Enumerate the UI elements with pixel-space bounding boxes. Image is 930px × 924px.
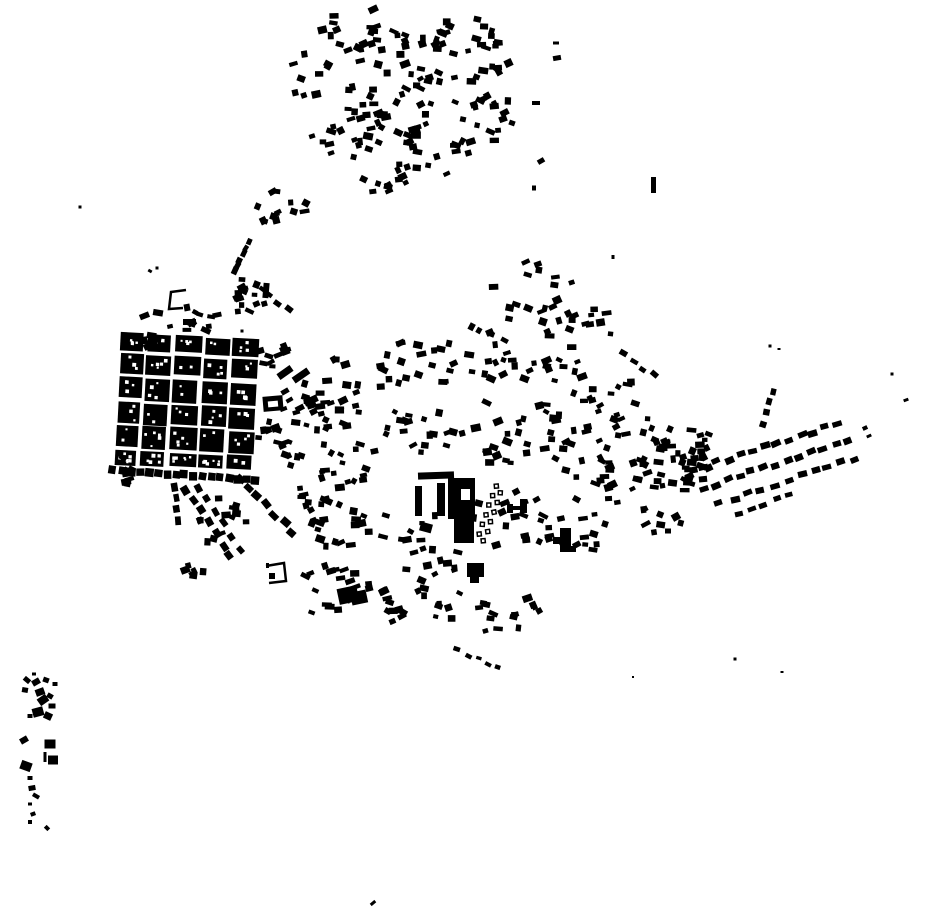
building [22, 687, 29, 693]
courtyard-hole [220, 366, 223, 369]
building [475, 605, 483, 610]
checker-cell-hole [489, 520, 492, 523]
building [580, 399, 588, 404]
courtyard-hole [130, 339, 133, 342]
building [640, 506, 646, 514]
building [553, 42, 559, 45]
building [334, 606, 342, 613]
courtyard-hole [158, 461, 161, 464]
checker-cell-hole [485, 514, 488, 517]
courtyard-hole [125, 389, 129, 393]
building [189, 472, 197, 481]
city-block [172, 379, 198, 403]
building [429, 546, 436, 554]
building [386, 376, 393, 383]
courtyard-hole [128, 455, 131, 458]
building [687, 459, 697, 467]
building [329, 13, 338, 19]
building [28, 803, 32, 806]
courtyard-hole [126, 461, 128, 463]
city-block [169, 453, 196, 467]
courtyard-hole [189, 456, 191, 458]
building [702, 438, 708, 442]
building [654, 478, 662, 484]
courtyard-hole [121, 439, 124, 442]
landmark-building [467, 563, 484, 577]
courtyard-hole [135, 342, 138, 345]
building [53, 682, 58, 686]
courtyard-hole [212, 417, 214, 419]
courtyard-hole [217, 463, 220, 466]
courtyard-hole [128, 459, 132, 463]
building [221, 511, 231, 518]
building [573, 474, 579, 480]
courtyard-hole [151, 364, 153, 366]
building [28, 776, 33, 780]
courtyard-hole [125, 380, 129, 384]
building [45, 740, 56, 749]
city-block [205, 338, 230, 356]
building [593, 541, 599, 547]
building [215, 473, 223, 482]
courtyard-hole [244, 438, 247, 441]
building [127, 468, 136, 477]
building [503, 522, 510, 529]
building [769, 345, 772, 348]
building [489, 284, 499, 290]
building [136, 468, 144, 475]
checker-cell-hole [482, 539, 485, 542]
checker-cell-hole [488, 504, 491, 507]
building [204, 538, 211, 546]
landmark-building [553, 537, 561, 544]
building [350, 570, 359, 577]
building [48, 756, 58, 765]
building [495, 128, 501, 133]
building [175, 516, 181, 525]
building [556, 411, 562, 419]
checker-cell-hole [481, 523, 484, 526]
building [365, 528, 373, 535]
building [351, 108, 358, 115]
building [345, 87, 353, 94]
courtyard-hole [202, 461, 205, 464]
checker-cell-hole [491, 494, 494, 497]
building [28, 714, 33, 718]
building [653, 459, 663, 466]
building [412, 164, 421, 171]
courtyard-hole [209, 391, 213, 395]
building [235, 290, 243, 296]
building [443, 18, 451, 25]
building [353, 446, 359, 452]
building [432, 512, 438, 519]
building [608, 391, 615, 396]
courtyard-hole [149, 460, 153, 464]
landmark-building [183, 319, 196, 325]
courtyard-hole [132, 405, 135, 408]
building [241, 330, 244, 333]
building [235, 308, 241, 314]
building [288, 199, 294, 205]
building [354, 381, 361, 389]
checker-cell-hole [493, 511, 496, 514]
building [467, 78, 477, 85]
checker-cell-hole [495, 485, 498, 488]
courtyard-hole [151, 454, 155, 458]
landmark-building [651, 177, 656, 193]
courtyard-hole [217, 373, 220, 376]
building [545, 525, 552, 531]
building [448, 615, 456, 622]
building [481, 370, 488, 378]
building [335, 483, 346, 491]
building [49, 704, 56, 709]
building [680, 488, 690, 492]
courtyard-hole [246, 349, 249, 352]
landmark-building [437, 483, 445, 516]
courtyard-hole [156, 382, 158, 384]
building [699, 476, 708, 483]
courtyard-hole [245, 341, 248, 344]
courtyard-hole [208, 420, 212, 424]
courtyard-hole [156, 363, 160, 367]
building [632, 676, 634, 678]
building [108, 465, 116, 474]
city-block [118, 401, 141, 423]
building [425, 162, 431, 168]
landmark-building [269, 573, 275, 579]
building [331, 471, 337, 477]
building [612, 255, 615, 259]
city-block [174, 356, 202, 376]
courtyard-hole [180, 393, 183, 396]
building [396, 161, 402, 167]
building [349, 507, 358, 516]
courtyard-hole [181, 437, 184, 440]
courtyard-hole [131, 342, 134, 345]
courtyard-hole [234, 439, 237, 442]
courtyard-hole [247, 434, 250, 437]
building [314, 426, 320, 433]
building [315, 71, 323, 77]
courtyard-hole [158, 433, 161, 436]
building-footprint-map [0, 0, 930, 924]
building [608, 331, 614, 336]
building [179, 470, 187, 479]
building [596, 318, 606, 327]
building [421, 592, 427, 599]
building [359, 477, 367, 484]
building [605, 496, 612, 501]
building [505, 431, 511, 437]
courtyard-hole [147, 413, 150, 416]
courtyard-hole [148, 394, 151, 397]
building [763, 409, 771, 416]
building [588, 313, 594, 318]
building [559, 445, 568, 452]
building [668, 479, 678, 487]
building [402, 566, 410, 572]
building [369, 189, 377, 195]
building [316, 391, 325, 396]
courtyard-hole [125, 428, 127, 430]
building [377, 383, 385, 390]
courtyard-hole [241, 390, 245, 394]
building [698, 454, 705, 462]
building [183, 328, 192, 332]
building [344, 107, 351, 111]
courtyard-hole [181, 340, 183, 342]
city-block [143, 404, 168, 427]
courtyard-hole [132, 384, 135, 387]
building [656, 521, 666, 529]
building [225, 473, 234, 483]
building [645, 416, 651, 421]
building [567, 344, 576, 350]
landmark-building [454, 519, 474, 543]
building [154, 469, 163, 477]
city-block [228, 408, 255, 430]
city-block [119, 376, 143, 398]
building [505, 97, 511, 105]
courtyard-hole [135, 367, 138, 370]
building [734, 658, 737, 661]
building [474, 122, 480, 128]
building [591, 512, 597, 517]
building [398, 537, 405, 543]
building [545, 333, 555, 338]
building [394, 33, 400, 39]
building [79, 206, 82, 209]
courtyard-hole [150, 445, 152, 447]
map-canvas [0, 0, 930, 924]
city-block [120, 353, 144, 375]
building [511, 362, 518, 370]
building [263, 426, 272, 430]
courtyard-hole [128, 355, 131, 358]
building [559, 364, 567, 369]
courtyard-hole [207, 363, 211, 367]
courtyard-hole [203, 434, 206, 437]
building [384, 69, 391, 76]
building [323, 424, 332, 430]
building [891, 373, 894, 376]
city-block [202, 381, 228, 404]
building [418, 449, 424, 455]
building [322, 377, 332, 384]
building [156, 267, 159, 270]
building [400, 428, 408, 434]
building [435, 409, 443, 418]
building [200, 568, 207, 576]
courtyard-hole [157, 367, 159, 369]
courtyard-hole [218, 460, 220, 462]
building [378, 46, 386, 54]
courtyard-hole [237, 442, 240, 445]
building [44, 752, 47, 762]
checker-cell-hole [499, 492, 502, 495]
courtyard-hole [243, 412, 247, 416]
building [251, 476, 260, 485]
landmark-building [415, 486, 422, 516]
building [485, 459, 494, 466]
building [172, 505, 180, 513]
courtyard-hole [176, 407, 178, 409]
building [589, 386, 597, 392]
courtyard-hole [179, 366, 182, 369]
building [515, 624, 521, 631]
courtyard-hole [179, 411, 182, 414]
building [408, 71, 414, 77]
courtyard-hole [132, 363, 136, 367]
courtyard-hole [244, 396, 246, 398]
courtyard-hole [239, 350, 241, 352]
building [395, 176, 403, 183]
building [778, 348, 781, 350]
building [422, 111, 429, 118]
building [239, 277, 246, 282]
courtyard-hole [180, 385, 182, 387]
courtyard-hole [240, 346, 243, 349]
building [369, 101, 378, 106]
landmark-courtyard [461, 489, 470, 500]
courtyard-hole [157, 454, 160, 457]
building [535, 266, 542, 273]
courtyard-hole [250, 363, 252, 365]
building [269, 364, 275, 368]
courtyard-hole [150, 385, 154, 389]
courtyard-hole [154, 396, 157, 399]
building [429, 430, 438, 438]
building [580, 534, 590, 540]
building [171, 482, 179, 492]
building [480, 23, 488, 29]
building [670, 455, 676, 463]
courtyard-hole [190, 366, 193, 369]
building [328, 32, 334, 39]
courtyard-hole [214, 343, 217, 346]
checker-cell-hole [496, 501, 499, 504]
courtyard-hole [186, 342, 189, 345]
building [548, 436, 555, 442]
building [469, 369, 476, 375]
courtyard-hole [153, 431, 156, 434]
building [492, 341, 498, 348]
city-block [171, 405, 199, 426]
courtyard-hole [172, 456, 176, 460]
building [291, 419, 301, 426]
city-block [140, 451, 164, 467]
landmark-courtyard [268, 401, 278, 408]
building [355, 409, 361, 415]
building [320, 400, 330, 405]
city-block [141, 426, 166, 450]
building [320, 467, 330, 473]
building [651, 529, 657, 535]
city-block [230, 383, 257, 406]
checker-cell-hole [486, 530, 489, 533]
courtyard-hole [241, 461, 245, 465]
building [550, 282, 559, 289]
landmark-building [560, 528, 571, 547]
courtyard-hole [152, 420, 155, 423]
building [396, 51, 404, 58]
building [334, 356, 340, 362]
building [523, 449, 531, 456]
building [465, 48, 471, 54]
courtyard-hole [219, 391, 222, 394]
building [665, 529, 671, 534]
building [138, 336, 148, 345]
building [781, 671, 784, 673]
building [208, 472, 216, 480]
building [420, 35, 426, 42]
building [615, 432, 622, 438]
building [362, 112, 370, 119]
building [252, 293, 258, 297]
building [532, 101, 540, 105]
building [485, 358, 493, 365]
landmark-building [470, 577, 479, 583]
building [301, 50, 308, 58]
courtyard-hole [129, 409, 133, 413]
courtyard-hole [212, 431, 215, 434]
checker-cell-hole [478, 533, 481, 536]
courtyard-hole [186, 443, 188, 445]
landmark-building [512, 506, 521, 510]
city-block [201, 405, 227, 427]
building [32, 673, 36, 676]
building [239, 302, 244, 308]
building [532, 186, 536, 191]
courtyard-hole [164, 359, 168, 363]
courtyard-hole [160, 362, 163, 365]
building [321, 441, 327, 448]
city-block [231, 359, 258, 379]
building [318, 501, 324, 507]
building [297, 485, 303, 491]
building [508, 357, 517, 362]
courtyard-hole [176, 440, 179, 443]
landmark-building [520, 499, 527, 513]
building [118, 466, 127, 475]
building [243, 519, 250, 524]
courtyard-hole [173, 431, 176, 434]
building [416, 538, 425, 543]
building [369, 87, 377, 93]
building [571, 427, 577, 435]
building [697, 448, 705, 454]
courtyard-hole [183, 457, 185, 459]
building [320, 139, 327, 144]
courtyard-hole [212, 460, 214, 462]
landmark-building [183, 304, 190, 312]
courtyard-hole [172, 460, 175, 463]
building [438, 379, 447, 385]
courtyard-hole [245, 365, 247, 367]
city-block [226, 454, 251, 469]
building [682, 466, 690, 470]
city-block [232, 338, 260, 357]
building [482, 448, 492, 457]
building [198, 472, 207, 481]
building [365, 581, 372, 587]
building [359, 102, 366, 108]
city-block [228, 431, 255, 454]
courtyard-hole [212, 410, 215, 413]
building [28, 820, 32, 824]
